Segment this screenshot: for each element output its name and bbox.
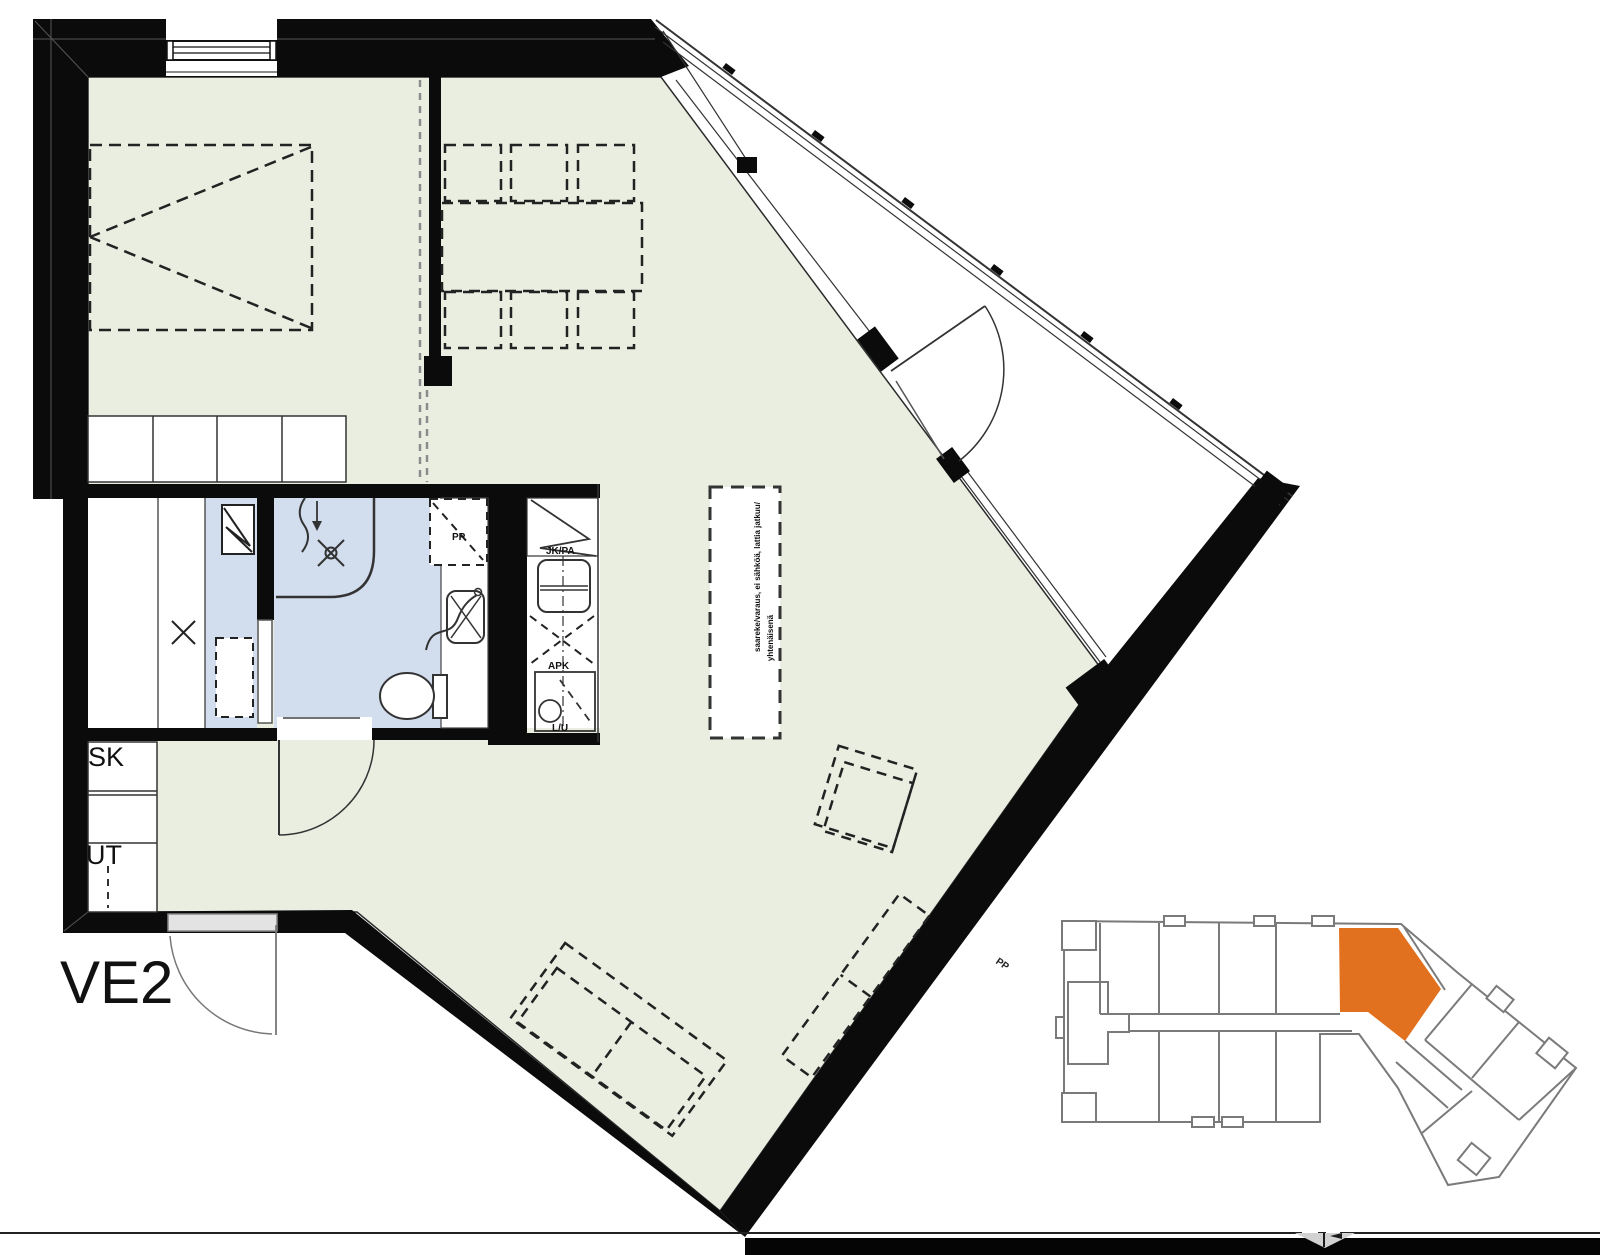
svg-text:UT: UT: [86, 840, 122, 870]
svg-text:APK: APK: [548, 661, 570, 672]
svg-text:SK: SK: [88, 742, 124, 772]
svg-text:JK/PA: JK/PA: [546, 546, 575, 557]
svg-text:VE2: VE2: [60, 949, 173, 1016]
svg-text:PP: PP: [452, 532, 466, 543]
svg-text:saareke/varaus, ei sähköä, lat: saareke/varaus, ei sähköä, lattia jatkuu…: [753, 501, 762, 652]
svg-text:yhtenäisenä: yhtenäisenä: [766, 614, 775, 661]
svg-text:L/U: L/U: [552, 723, 568, 734]
